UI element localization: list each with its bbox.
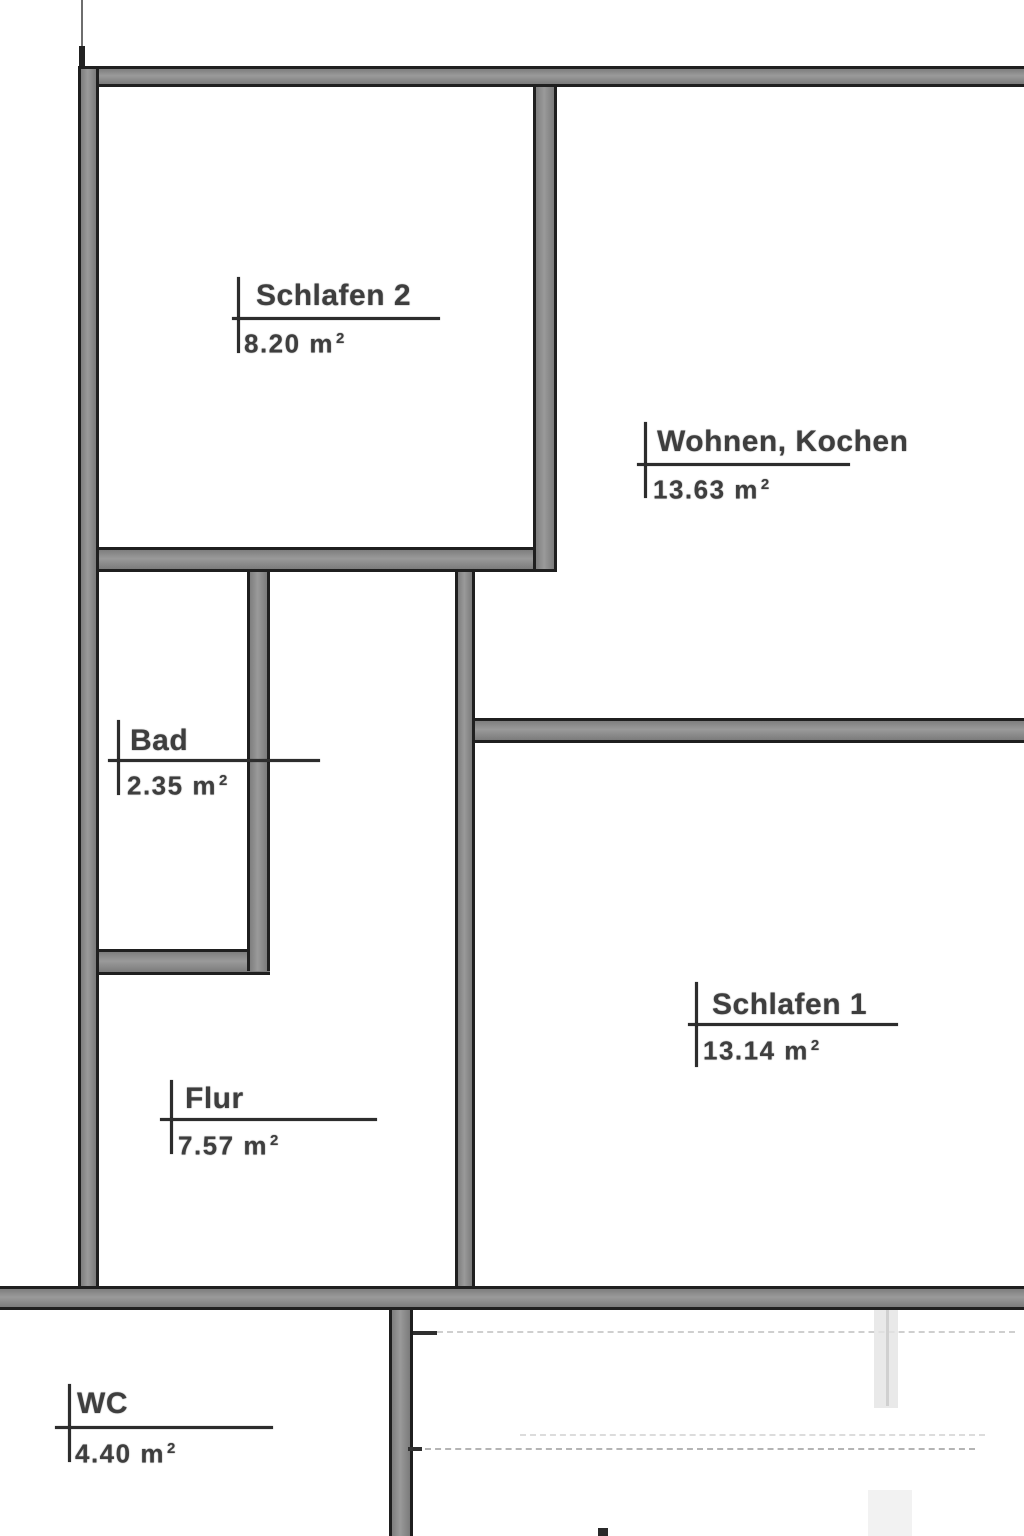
scan-artifact-vertical-line — [81, 0, 83, 52]
room-label-schlafen-2: Schlafen 2 8.20 m2 — [230, 275, 445, 355]
room-area-value: 13.63 m — [653, 475, 759, 505]
room-label-wc: WC 4.40 m2 — [54, 1382, 279, 1464]
room-area-value: 8.20 m — [244, 329, 334, 359]
label-tick-line — [644, 422, 647, 498]
room-name: Bad — [130, 726, 188, 756]
room-label-schlafen-1: Schlafen 1 13.14 m2 — [687, 980, 902, 1070]
wall-wc-right — [389, 1310, 413, 1536]
label-tick-line — [117, 720, 120, 795]
room-name: Schlafen 1 — [712, 990, 867, 1020]
room-area: 4.40 m2 — [75, 1436, 175, 1467]
tick-mark — [413, 1331, 437, 1335]
room-label-bad: Bad 2.35 m2 — [107, 718, 322, 798]
scan-artifact-dot — [598, 1528, 608, 1536]
room-area-value: 4.40 m — [75, 1439, 165, 1469]
room-area-sup: 2 — [336, 330, 344, 347]
scan-artifact-dashes — [425, 1448, 975, 1450]
wall-flur-schlafen1 — [455, 572, 475, 1286]
room-area: 8.20 m2 — [244, 326, 344, 357]
wall-outer-left — [78, 69, 99, 1286]
wall-outer-top — [78, 66, 1024, 87]
room-area-value: 7.57 m — [178, 1131, 268, 1161]
scan-artifact-smudge — [868, 1490, 912, 1536]
room-area-value: 13.14 m — [703, 1036, 809, 1066]
wall-wohnen-schlafen1 — [475, 718, 1024, 743]
room-area-sup: 2 — [219, 772, 227, 789]
wall-schlafen2-wohnen — [533, 87, 557, 572]
room-name: WC — [77, 1389, 128, 1419]
scan-artifact-nub — [79, 46, 85, 68]
room-area-sup: 2 — [167, 1440, 175, 1457]
scan-artifact-dashes — [520, 1434, 985, 1436]
room-label-wohnen-kochen: Wohnen, Kochen 13.63 m2 — [637, 420, 917, 500]
room-area-sup: 2 — [811, 1037, 819, 1054]
wall-bad-bottom — [99, 949, 270, 975]
label-underline — [108, 759, 320, 762]
label-tick-line — [237, 277, 240, 353]
room-area: 7.57 m2 — [178, 1128, 278, 1159]
floor-plan: Schlafen 2 8.20 m2 Wohnen, Kochen 13.63 … — [0, 0, 1024, 1536]
label-tick-line — [170, 1080, 173, 1154]
room-area: 13.63 m2 — [653, 472, 769, 503]
label-underline — [232, 317, 440, 320]
room-label-flur: Flur 7.57 m2 — [159, 1078, 384, 1158]
wall-schlafen2-bottom — [99, 547, 533, 572]
room-name: Wohnen, Kochen — [657, 427, 908, 457]
room-area: 13.14 m2 — [703, 1033, 819, 1064]
room-area-sup: 2 — [270, 1132, 278, 1149]
room-name: Schlafen 2 — [256, 281, 411, 311]
label-underline — [637, 463, 850, 466]
room-area: 2.35 m2 — [127, 768, 227, 799]
label-underline — [160, 1118, 377, 1121]
wall-bottom-main — [0, 1286, 1024, 1310]
wall-end-cap — [533, 569, 557, 572]
label-underline — [688, 1023, 898, 1026]
room-area-value: 2.35 m — [127, 771, 217, 801]
scan-artifact-smudge — [886, 1310, 889, 1406]
room-name: Flur — [185, 1084, 244, 1114]
room-area-sup: 2 — [761, 476, 769, 493]
tick-mark — [408, 1447, 422, 1451]
label-underline — [55, 1426, 273, 1429]
label-tick-line — [68, 1384, 71, 1462]
scan-artifact-dashes — [437, 1331, 1015, 1333]
